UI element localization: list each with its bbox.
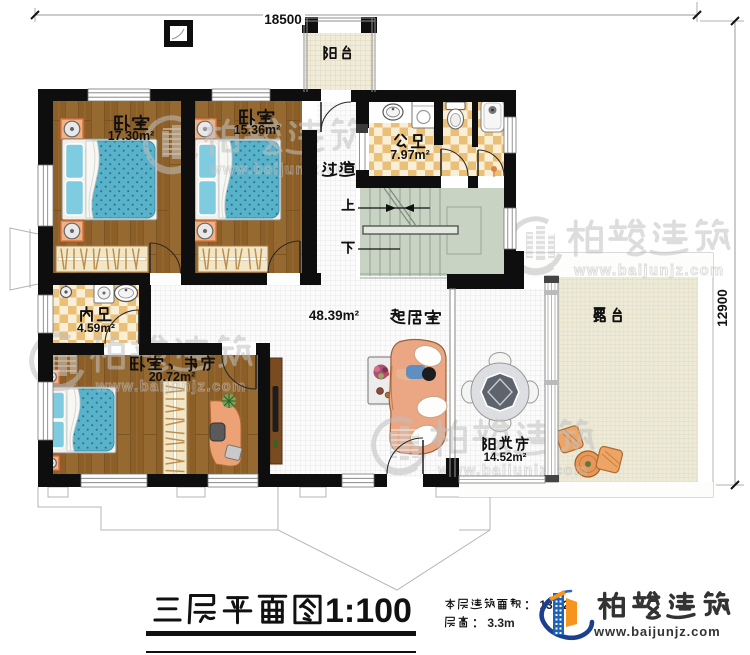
svg-text:18500: 18500 xyxy=(264,12,302,27)
svg-text:www.baijunjz.com: www.baijunjz.com xyxy=(209,162,361,178)
svg-text:14.52m²: 14.52m² xyxy=(484,452,527,464)
svg-text:： 3.3m: ： 3.3m xyxy=(472,616,515,630)
svg-text:1:100: 1:100 xyxy=(325,592,412,630)
svg-text:7.97m²: 7.97m² xyxy=(390,148,430,162)
svg-text:12900: 12900 xyxy=(715,289,730,327)
svg-text:20.72m²: 20.72m² xyxy=(149,370,196,384)
svg-text:www.baijunjz.com: www.baijunjz.com xyxy=(573,263,725,279)
svg-text:15.36m²: 15.36m² xyxy=(234,123,281,137)
svg-text:48.39m²: 48.39m² xyxy=(309,308,360,323)
svg-text:4.59m²: 4.59m² xyxy=(77,321,115,335)
svg-text:www.baijunjz.com: www.baijunjz.com xyxy=(593,624,721,639)
svg-text:17.30m²: 17.30m² xyxy=(108,129,155,143)
